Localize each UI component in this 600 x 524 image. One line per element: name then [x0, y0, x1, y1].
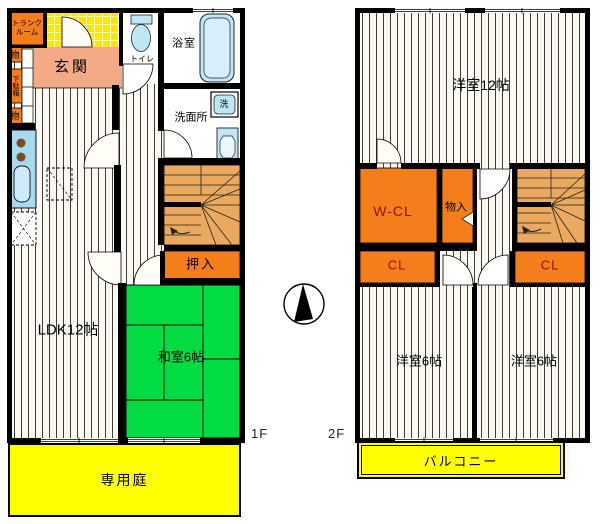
- compass-north-arrow: [281, 281, 329, 329]
- balcony: バルコニー: [357, 441, 565, 479]
- room-label-toilet: トイレ: [130, 54, 154, 63]
- room-label-storage-upper: 物: [10, 50, 19, 60]
- room-label-entrance: 玄関: [54, 58, 90, 75]
- room-label-closet-right: CL: [541, 259, 560, 274]
- kitchen-counter: [10, 130, 36, 208]
- stairs-1f: [164, 165, 240, 245]
- room-label-closet-left: CL: [388, 259, 407, 274]
- floor-plan-1f: トランク ルーム 物 下駄箱 物 玄関 トイレ 浴室 洗面所 洗 LDK12帖 …: [7, 8, 245, 443]
- room-label-shoe-cabinet: 下駄箱: [11, 76, 19, 97]
- room-label-japanese-room: 和室6帖: [158, 351, 204, 366]
- trunk-room-line2: ルーム: [12, 28, 42, 37]
- floor-1f-drawing: [7, 8, 245, 443]
- stairs-2f: [517, 168, 585, 243]
- label-balcony: バルコニー: [424, 451, 499, 470]
- floor-plan-canvas: トランク ルーム 物 下駄箱 物 玄関 トイレ 浴室 洗面所 洗 LDK12帖 …: [0, 0, 600, 524]
- room-label-washroom: 洗面所: [175, 112, 208, 125]
- floor-tag-2f: 2F: [328, 426, 345, 441]
- bathtub-icon: [200, 14, 234, 82]
- room-label-western-room-6-left: 洋室6帖: [396, 355, 442, 370]
- label-private-garden: 専用庭: [101, 470, 149, 490]
- stove-burner: [17, 153, 26, 162]
- room-label-oshiire: 押入: [186, 258, 216, 273]
- private-garden: 専用庭: [8, 443, 241, 517]
- kitchen-sink: [14, 166, 30, 202]
- floor-plan-2f: 洋室12帖 W-CL 物入 CL CL 洋室6帖 洋室6帖: [355, 8, 590, 443]
- room-label-storage-lower: 物: [10, 111, 19, 121]
- room-label-bathroom: 浴室: [172, 38, 196, 51]
- label-washing-machine: 洗: [219, 99, 228, 109]
- toilet-icon: [131, 15, 152, 52]
- floor-tag-1f: 1F: [251, 426, 268, 441]
- floor-2f-drawing: [355, 8, 590, 443]
- room-label-trunk-room: トランク ルーム: [12, 19, 42, 36]
- refrigerator-outline: [11, 212, 36, 245]
- room-label-western-room-6-right: 洋室6帖: [511, 355, 557, 370]
- vanity-sink-icon: [217, 128, 238, 160]
- stove-burner: [17, 139, 26, 148]
- room-label-western-room-12: 洋室12帖: [452, 77, 510, 93]
- room-label-storage: 物入: [445, 202, 467, 215]
- room-label-walk-in-closet: W-CL: [373, 203, 413, 219]
- room-label-ldk: LDK12帖: [38, 321, 99, 338]
